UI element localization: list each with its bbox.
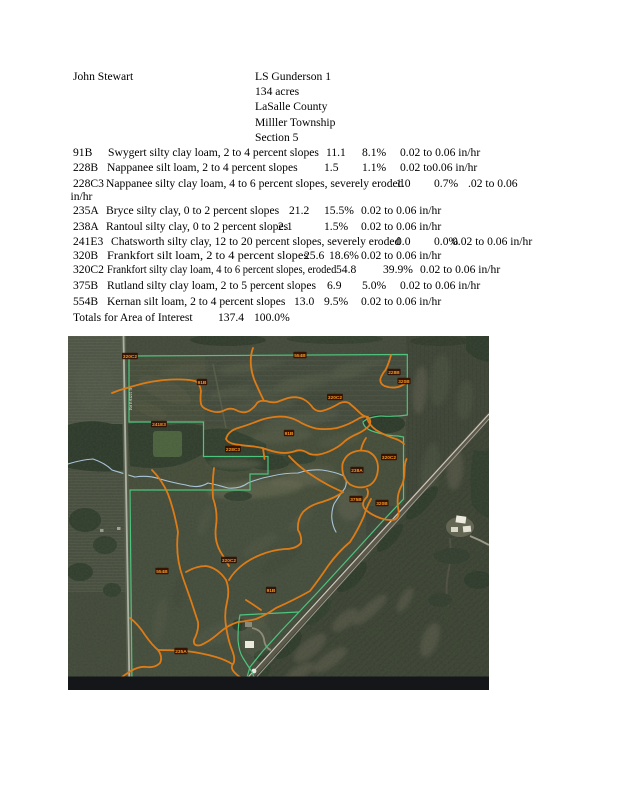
svg-text:554B: 554B (156, 569, 168, 575)
svg-text:235A: 235A (175, 649, 187, 655)
svg-text:375B: 375B (350, 497, 362, 503)
svg-text:320C2: 320C2 (328, 395, 342, 401)
svg-text:238A: 238A (351, 468, 363, 474)
svg-text:91B: 91B (198, 380, 207, 386)
svg-text:91B: 91B (267, 588, 276, 594)
svg-text:320C2: 320C2 (123, 354, 137, 360)
svg-text:554B: 554B (294, 353, 306, 359)
svg-text:320B: 320B (376, 501, 388, 507)
svg-text:91B: 91B (285, 431, 294, 437)
svg-text:320B: 320B (398, 379, 410, 385)
svg-text:320C2: 320C2 (382, 455, 396, 461)
svg-text:228B: 228B (388, 370, 400, 376)
svg-text:241E3: 241E3 (152, 422, 166, 428)
svg-text:320C2: 320C2 (222, 558, 236, 564)
svg-text:228C3: 228C3 (226, 447, 240, 453)
